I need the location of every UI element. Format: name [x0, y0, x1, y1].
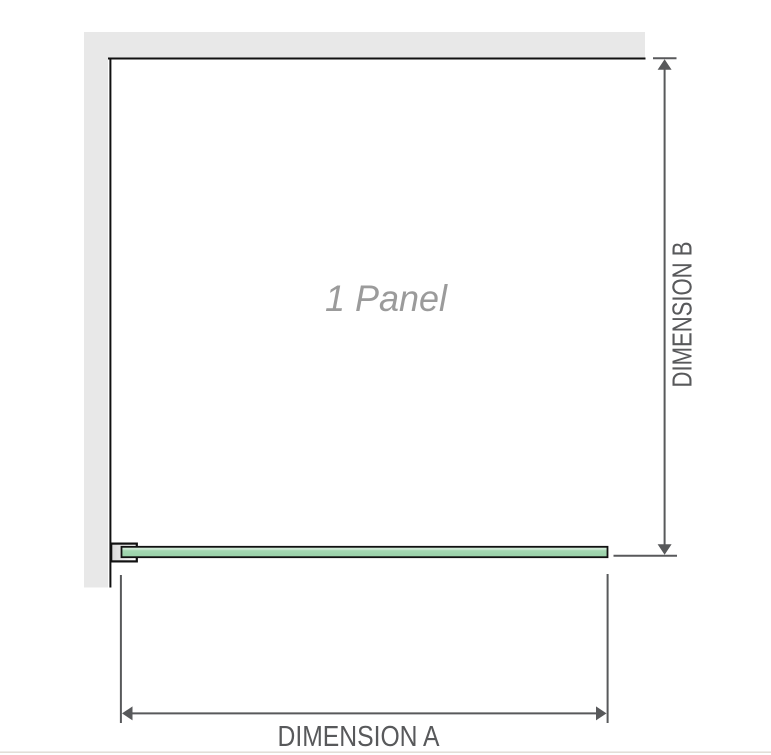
svg-text:DIMENSION B: DIMENSION B — [667, 242, 698, 388]
svg-text:1 Panel: 1 Panel — [325, 278, 449, 319]
svg-text:DIMENSION A: DIMENSION A — [278, 721, 441, 753]
